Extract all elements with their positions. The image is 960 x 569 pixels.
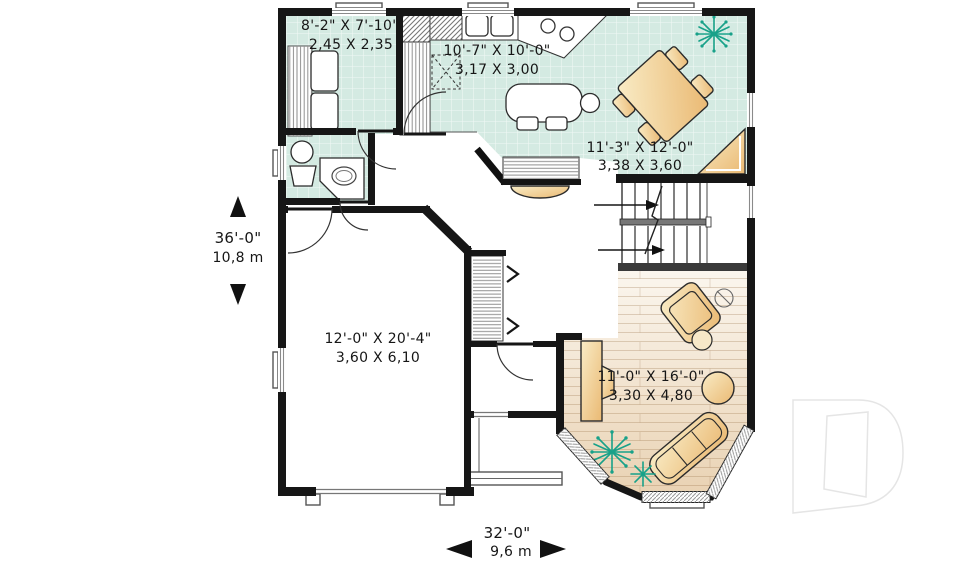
kitchen-dims-metric: 3,17 X 3,00 [455,62,539,78]
closet-rod [473,258,501,339]
kitchen-table [506,84,582,122]
dining-dims-metric: 3,38 X 3,60 [598,158,682,174]
window [278,146,286,180]
bar-seat [511,186,569,198]
width-imperial: 32'-0" [484,524,531,542]
arrow-down-icon [230,284,246,305]
laundry-dims-imperial: 8'-2" X 7'-10" [301,18,399,34]
kitchen-dims-imperial: 10'-7" X 10'-0" [443,43,550,59]
staircase [594,181,750,271]
brand-logo [793,400,903,513]
width-metric: 9,6 m [490,544,532,560]
round-table [702,372,734,404]
width-dimension: 32'-0" 9,6 m [446,524,566,560]
dryer [311,93,338,130]
arrow-up-icon [230,196,246,217]
window [747,93,755,127]
depth-dimension: 36'-0" 10,8 m [212,196,263,305]
laundry-fixtures [288,46,338,136]
laundry-dims-metric: 2,45 X 2,35 [309,37,393,53]
coat-closet [471,256,518,341]
kitchen-sink [466,15,488,36]
living-dims-metric: 3,30 X 4,80 [609,388,693,404]
window [462,8,514,16]
toilet [291,141,313,163]
bay-window [642,492,710,503]
washer [311,51,338,91]
plant-icon [631,462,655,486]
wall-stair-top [616,174,755,183]
arrow-right-icon [540,540,566,558]
window [278,348,286,392]
kitchen-chair [546,117,567,130]
side-counter [400,42,430,135]
window [747,186,755,218]
kitchen-chair [581,94,600,113]
dining-dims-imperial: 11'-3" X 12'-0" [586,140,693,156]
arrow-left-icon [446,540,472,558]
corner-counter [400,12,430,42]
stair-rail [620,219,708,225]
floor-plan-canvas: 8'-2" X 7'-10" 2,45 X 2,35 10'-7" X 10'-… [0,0,960,569]
garage-dims-imperial: 12'-0" X 20'-4" [324,331,431,347]
window [332,8,386,16]
garage-dims-metric: 3,60 X 6,10 [336,350,420,366]
floor-plan: 8'-2" X 7'-10" 2,45 X 2,35 10'-7" X 10'-… [0,0,960,569]
wall-garage-top [332,206,430,213]
plant-icon [695,15,732,52]
coat-hook [507,318,518,334]
wall-garage-diagonal [424,208,469,252]
kitchen-chair [517,117,538,130]
coat-hook [507,266,518,282]
wall-foyer-bottom [508,411,564,418]
depth-imperial: 36'-0" [215,229,262,247]
wall-left [278,8,286,496]
wall-right [747,8,755,432]
side-table [692,330,712,350]
depth-metric: 10,8 m [212,250,263,266]
living-dims-imperial: 11'-0" X 16'-0" [597,369,704,385]
window [630,8,702,16]
